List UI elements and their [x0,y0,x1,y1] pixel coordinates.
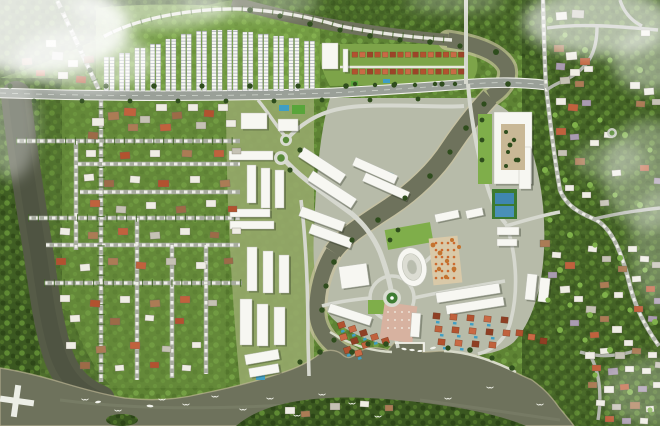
aerial-master-plan-rendering [0,0,660,426]
river-islet [106,414,138,426]
master-plan-stage [0,0,660,426]
